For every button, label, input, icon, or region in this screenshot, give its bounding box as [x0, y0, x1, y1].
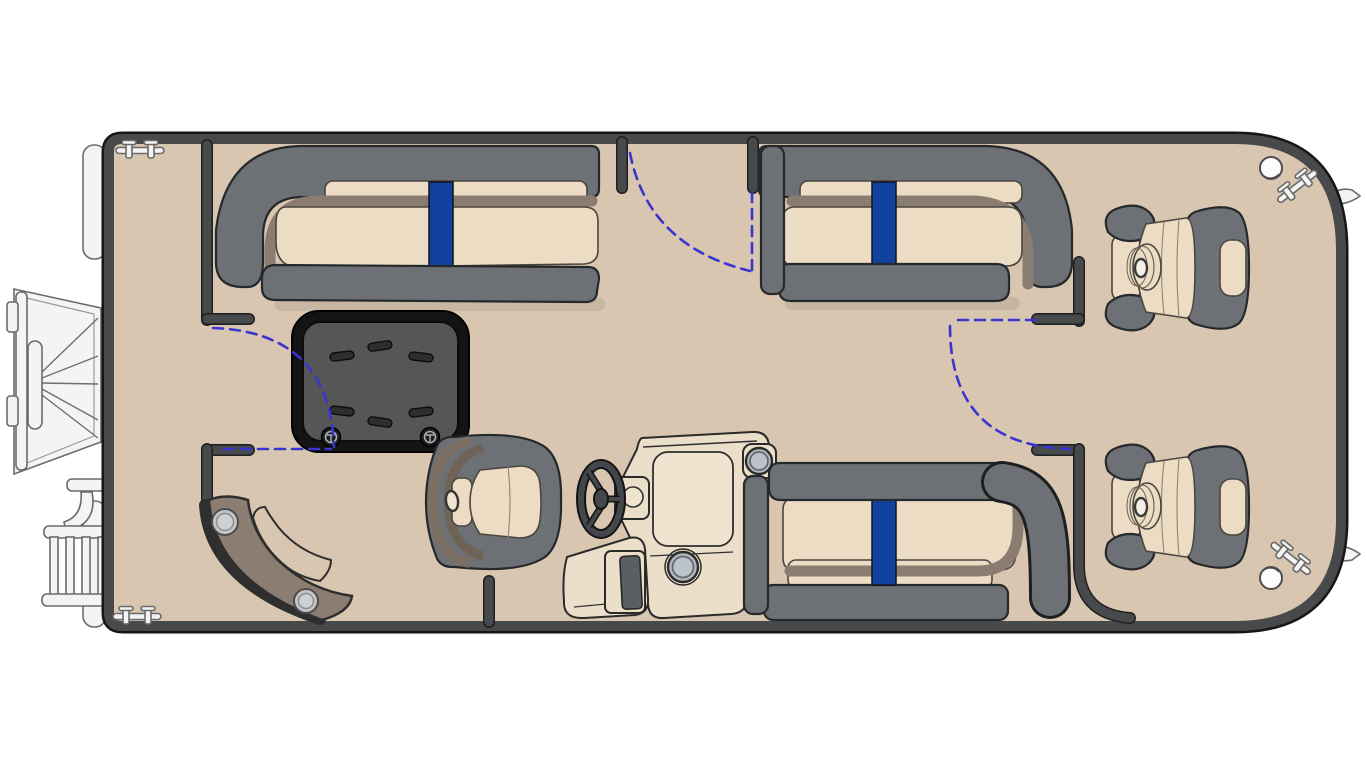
port-bow-lounge [216, 146, 605, 311]
helm-chair [426, 435, 561, 569]
outboard-motor [7, 289, 101, 474]
bow-fishing-chair-lower [1106, 445, 1249, 570]
aft-lounge [744, 463, 1050, 620]
accent-stripe [872, 182, 896, 268]
floor-plan-canvas [0, 0, 1366, 768]
accent-stripe [429, 182, 453, 268]
starboard-bow-lounge [759, 146, 1072, 310]
accent-stripe [872, 499, 896, 585]
bow-fishing-chair-upper [1106, 206, 1249, 331]
pontoon-floor-plan [0, 0, 1366, 768]
